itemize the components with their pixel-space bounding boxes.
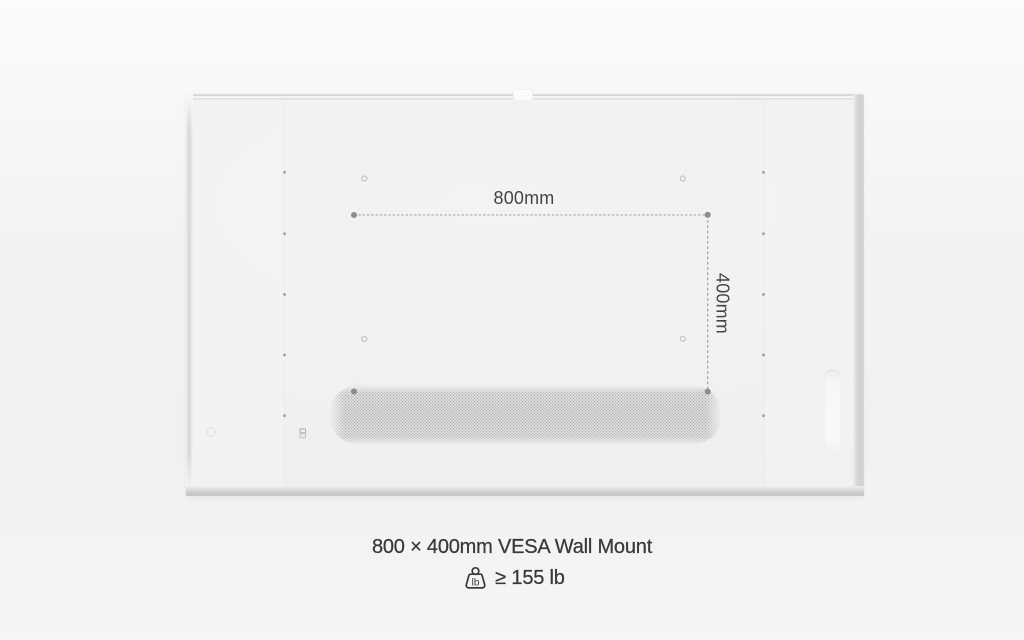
svg-text:lb: lb <box>472 577 480 588</box>
